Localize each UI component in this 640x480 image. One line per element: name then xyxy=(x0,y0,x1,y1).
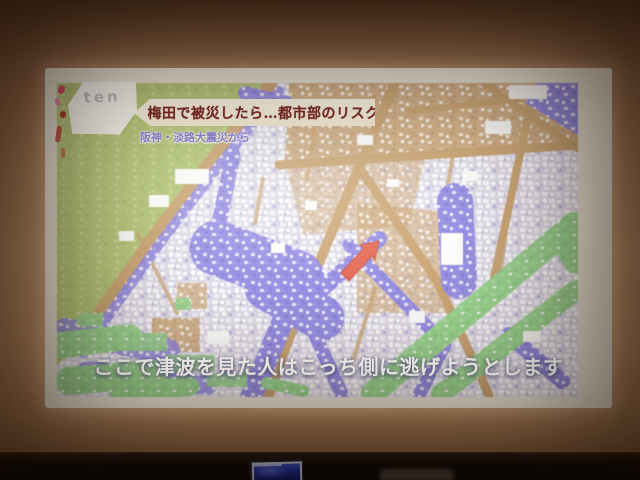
stage-edge xyxy=(0,452,640,480)
headline-text: 梅田で被災したら…都市部のリスク xyxy=(156,99,371,126)
map-grain xyxy=(57,83,578,397)
laptop-menubar xyxy=(254,464,282,467)
laptop xyxy=(249,459,304,480)
logo-ornament xyxy=(60,111,66,118)
projection-screen: ten 梅田で被災したら…都市部のリスク 阪神・淡路大震災から ここで津波を見た… xyxy=(45,68,612,408)
caption-text: ここで津波を見た人はこっち側に逃げようとします xyxy=(45,351,612,380)
equipment-silhouette xyxy=(380,469,454,480)
photo-of-projection-room: ten 梅田で被災したら…都市部のリスク 阪神・淡路大震災から ここで津波を見た… xyxy=(0,0,640,480)
logo-ornament xyxy=(61,148,65,158)
subheadline-text: 阪神・淡路大震災から xyxy=(140,129,250,145)
headline-banner: 梅田で被災したら…都市部のリスク xyxy=(134,99,375,126)
flood-map xyxy=(57,83,578,397)
laptop-screen xyxy=(252,461,302,480)
